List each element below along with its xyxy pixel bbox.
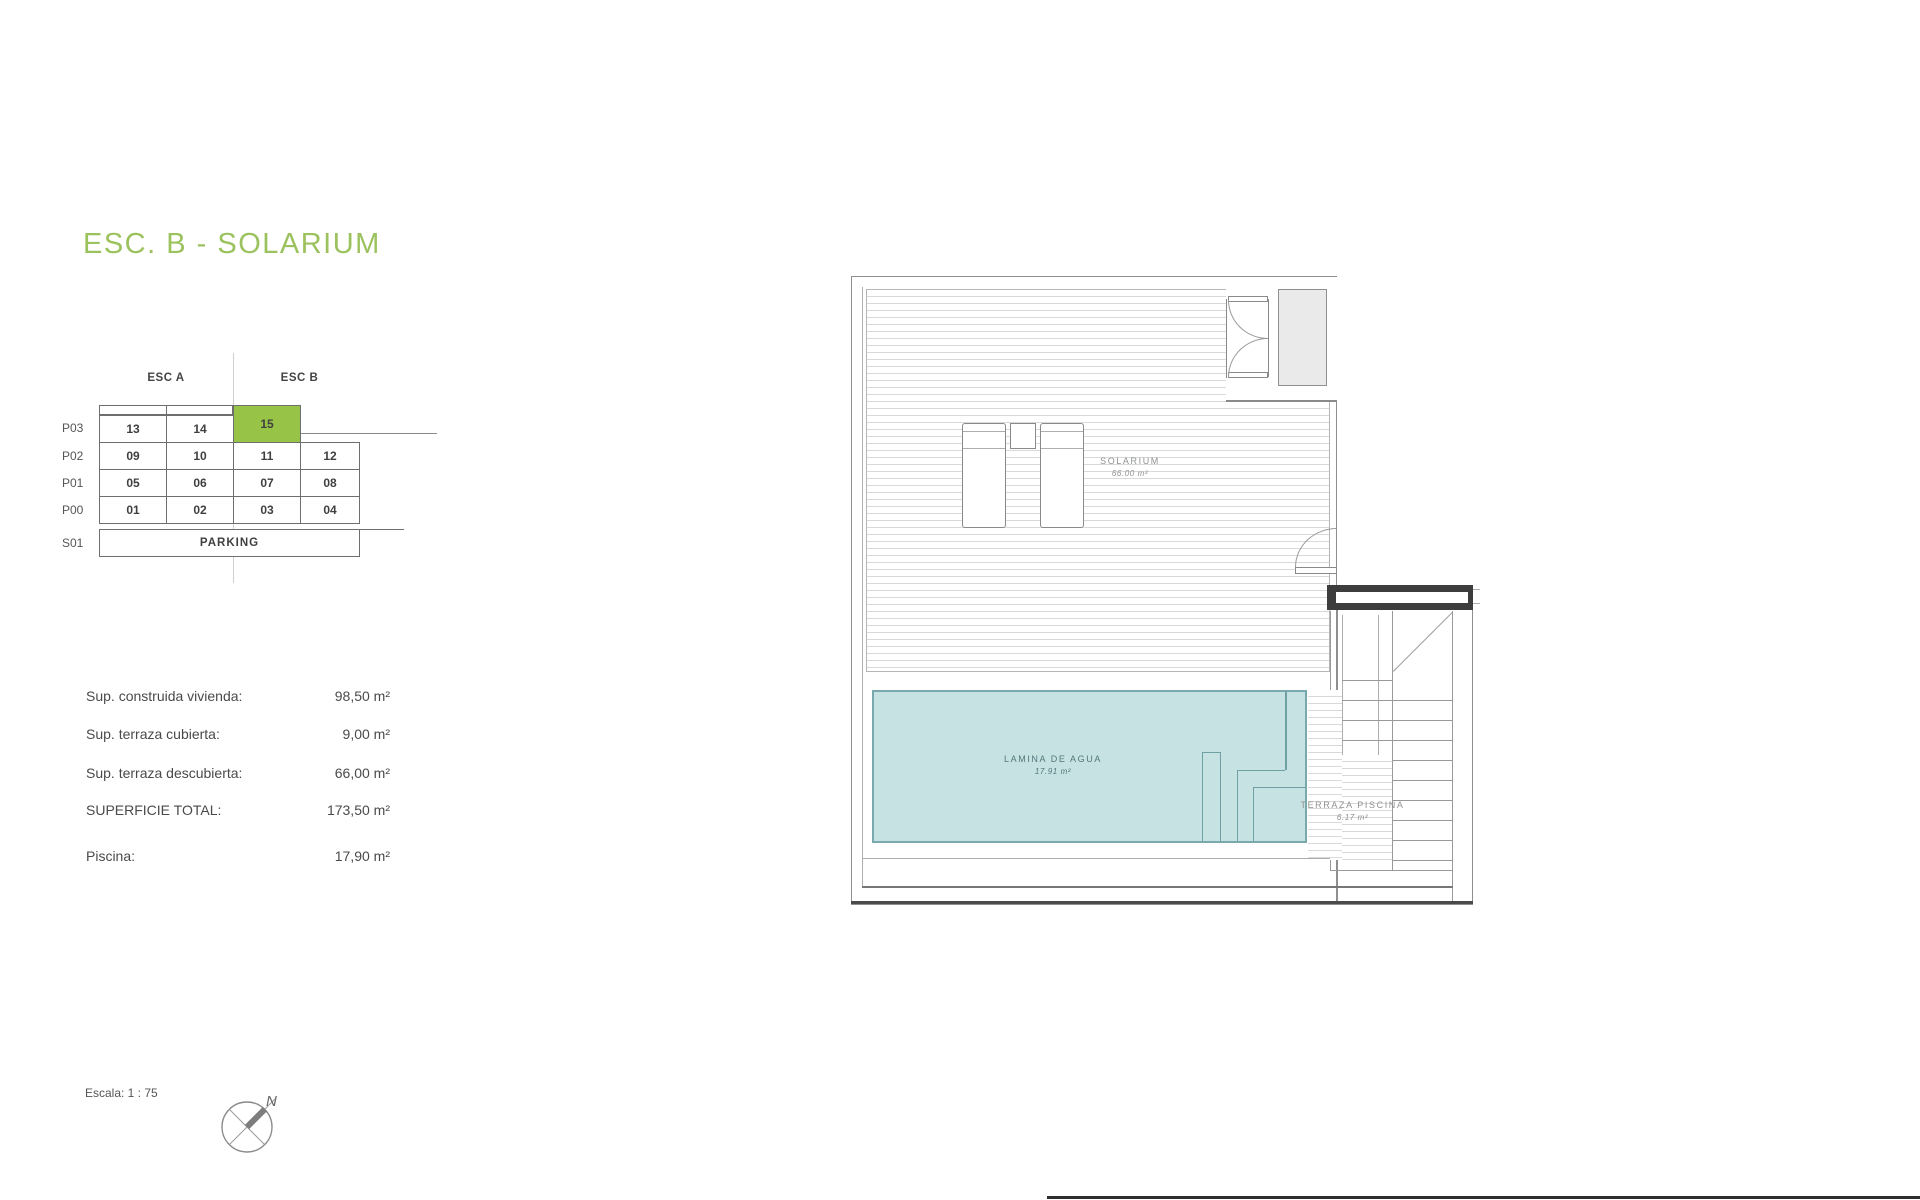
solarium-name: SOLARIUM [1100,456,1160,466]
stack-row-label: P01 [62,476,96,490]
stack-header-esc-b: ESC B [233,372,366,388]
side-table [1010,423,1036,449]
pool-terrace-hatch [1308,690,1342,860]
deck-edge-line [862,858,1330,859]
stack-cell-09: 09 [99,442,167,470]
stair-tread [1393,840,1452,841]
stack-cell-04: 04 [300,496,360,524]
beam-tick-line [1473,589,1480,590]
lounger-pillow-line [1041,431,1083,432]
plot-outer-edge [851,901,1473,904]
stack-cell-07: 07 [233,469,301,497]
beam-tick-line [1473,603,1480,604]
stack-cell-01: 01 [99,496,167,524]
lounger-backrest-line [1041,448,1083,449]
stair-bottom-line [1330,870,1452,871]
rooflight-box [1278,289,1327,386]
stack-row-label: S01 [62,536,96,550]
stack-cell-12: 12 [300,442,360,470]
stack-cell-13: 13 [99,415,167,443]
inner-offset-line [862,287,863,887]
stair-divider-line [1392,611,1393,871]
stack-row-label: P03 [62,421,96,435]
stair-outer-line [1452,611,1453,905]
surface-label: Sup. terraza cubierta: [86,726,220,742]
surface-label-total: SUPERFICIE TOTAL: [86,802,221,818]
surface-label: Sup. construida vivienda: [86,688,242,704]
stack-cell-06: 06 [166,469,234,497]
surface-label: Sup. terraza descubierta: [86,765,242,781]
pool-terrace-label: TERRAZA PISCINA 6.17 m² [1290,800,1415,822]
pool-terrace-area-value: 6.17 m² [1290,813,1415,822]
surface-value: 9,00 m² [270,726,390,742]
stair-tread [1393,860,1452,861]
pool-step-wall [1285,691,1287,770]
lounger-backrest-line [963,448,1005,449]
page-title: ESC. B - SOLARIUM [83,228,381,261]
solarium-area-value: 66.00 m² [1060,469,1200,478]
scale-label: Escala: 1 : 75 [85,1086,158,1100]
stair-tread [1342,680,1392,681]
page-edge-line [1047,1196,1920,1199]
stack-cell-02: 02 [166,496,234,524]
compass-north-icon: N [213,1090,283,1160]
stack-row-label: P00 [62,503,96,517]
recess-wall [1226,400,1337,402]
pool-area-value: 17.91 m² [973,767,1133,776]
roof-strip-divider [166,405,167,415]
pool-terrace-name: TERRAZA PISCINA [1300,800,1404,810]
plot-edge-line [862,886,1453,888]
pool-room-label: LAMINA DE AGUA 17.91 m² [973,754,1133,776]
surface-value: 66,00 m² [270,765,390,781]
stack-header-esc-a: ESC A [99,372,233,388]
stack-row-label: P02 [62,449,96,463]
surface-value-total: 173,50 m² [270,802,390,818]
stair-tread [1393,700,1452,701]
stack-cell-11: 11 [233,442,301,470]
compass-n-label: N [266,1093,277,1110]
stack-cell-14: 14 [166,415,234,443]
surface-label-pool: Piscina: [86,848,135,864]
plan-sheet-page: ESC. B - SOLARIUM ESC A ESC B P03 13 14 … [0,0,1920,1200]
stack-cell-03: 03 [233,496,301,524]
surface-value-pool: 17,90 m² [270,848,390,864]
pergola-beam-slot [1336,592,1468,603]
stack-cell-10: 10 [166,442,234,470]
door-leaf-terrace [1295,567,1337,574]
stair-tread [1342,720,1392,721]
lounger-pillow-line [963,431,1005,432]
stack-cell-parking: PARKING [99,529,360,557]
stair-tread [1342,700,1392,701]
stack-cell-08: 08 [300,469,360,497]
stair-tread [1342,740,1392,741]
solarium-room-label: SOLARIUM 66.00 m² [1060,456,1200,478]
stair-tread [1393,740,1452,741]
pool-name: LAMINA DE AGUA [1004,754,1102,764]
pool-step [1202,752,1221,841]
sun-lounger [962,423,1006,528]
recess-jamb-left [1226,299,1227,378]
surface-value: 98,50 m² [270,688,390,704]
stack-cell-05: 05 [99,469,167,497]
stair-tread [1393,760,1452,761]
stair-tread [1393,780,1452,781]
roof-parapet-line [300,433,437,434]
stair-tread [1393,720,1452,721]
recess-jamb-right [1268,299,1269,377]
stack-cell-15-highlighted: 15 [233,405,301,443]
